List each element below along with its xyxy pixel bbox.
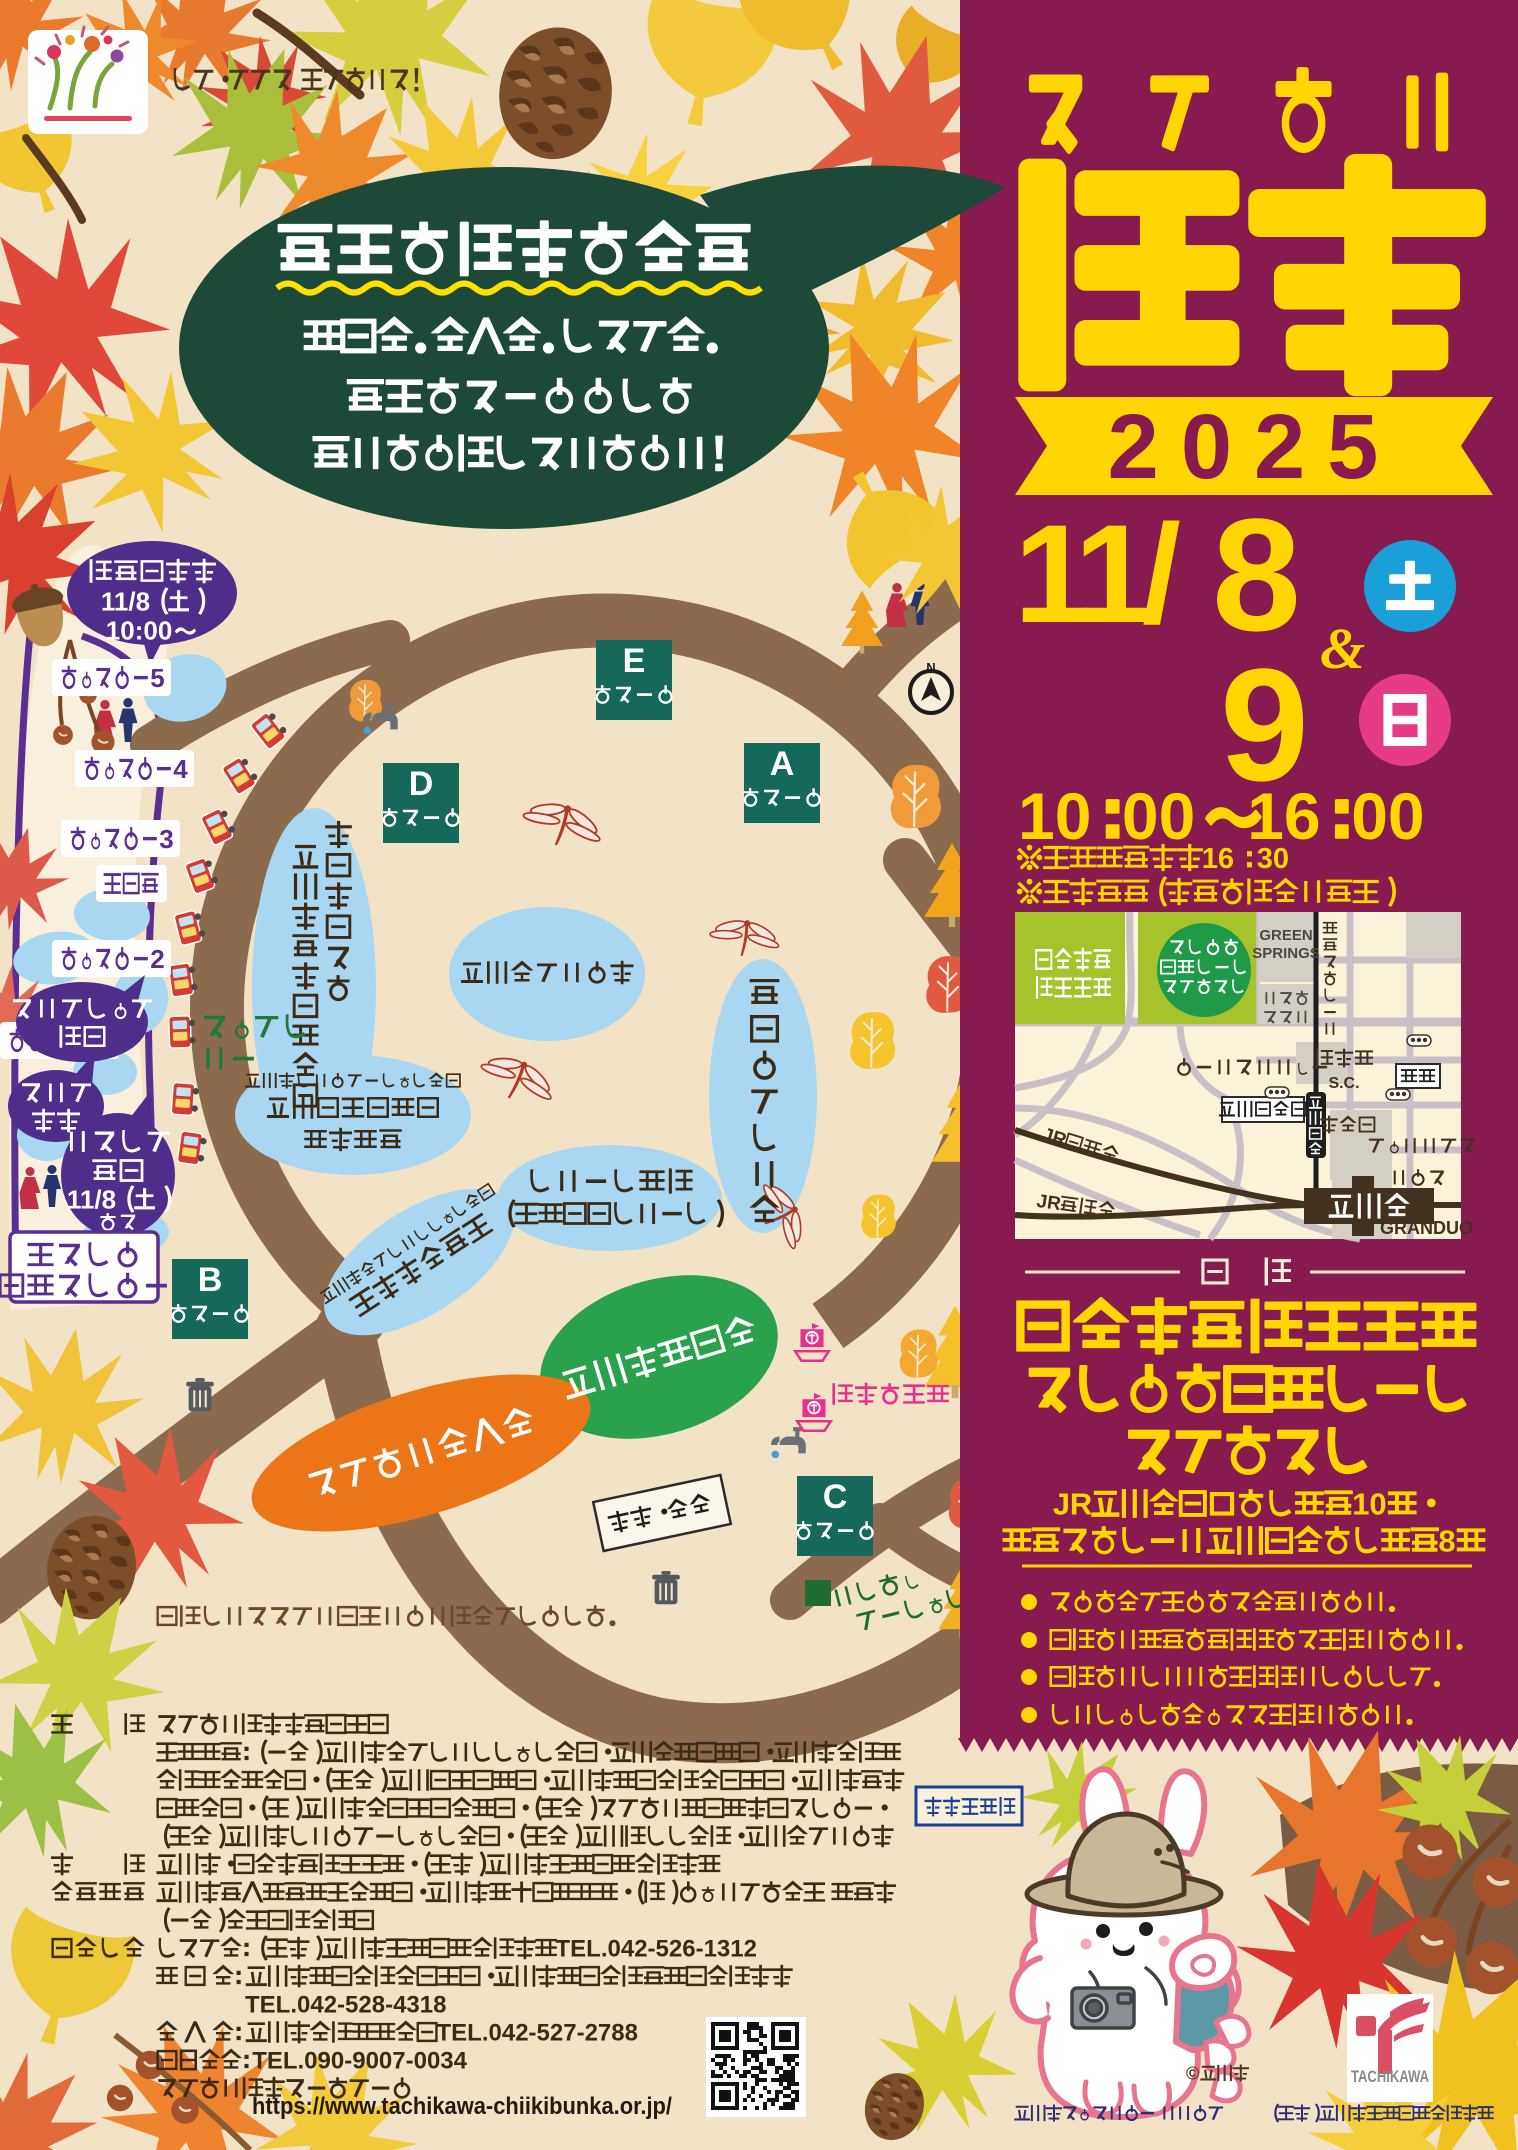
svg-text:11/: 11/ <box>1014 495 1180 652</box>
svg-text:3: 3 <box>159 824 173 854</box>
svg-text:16: 16 <box>1202 843 1234 875</box>
svg-text:JR: JR <box>1053 1487 1093 1522</box>
svg-text:00: 00 <box>1351 779 1424 853</box>
svg-text:11/8: 11/8 <box>67 1184 116 1214</box>
svg-text:10: 10 <box>1018 779 1091 853</box>
svg-text:GRANDUO: GRANDUO <box>1380 1218 1473 1238</box>
svg-text:TEL.042-527-2788: TEL.042-527-2788 <box>437 2020 638 2047</box>
svg-text:TEL.042-528-4318: TEL.042-528-4318 <box>245 1992 446 2019</box>
svg-text:&: & <box>1320 616 1365 681</box>
svg-text:16: 16 <box>1247 779 1320 853</box>
svg-text:00: 00 <box>1122 779 1195 853</box>
svg-text:5: 5 <box>150 663 164 693</box>
svg-text:https://www.tachikawa-chiikibu: https://www.tachikawa-chiikibunka.or.jp/ <box>252 2093 672 2120</box>
svg-text:JR: JR <box>1035 1191 1062 1215</box>
svg-text:11/8: 11/8 <box>101 586 150 616</box>
svg-text:2: 2 <box>150 944 164 974</box>
svg-text:E: E <box>623 642 646 680</box>
svg-text:TEL.090-9007-0034: TEL.090-9007-0034 <box>252 2048 467 2075</box>
svg-text:C: C <box>823 1478 848 1516</box>
svg-text:10: 10 <box>1352 1487 1386 1522</box>
svg-text:B: B <box>198 1261 223 1299</box>
svg-text:TACHIKAWA: TACHIKAWA <box>1351 2068 1429 2086</box>
svg-text:GREEN: GREEN <box>1259 927 1312 944</box>
svg-text:SPRINGS: SPRINGS <box>1252 945 1320 962</box>
svg-text:TEL.042-526-1312: TEL.042-526-1312 <box>556 1936 757 1963</box>
svg-text:N: N <box>926 660 935 675</box>
svg-text:10:00: 10:00 <box>106 615 173 645</box>
svg-text:4: 4 <box>173 754 188 784</box>
svg-text:A: A <box>770 745 795 783</box>
svg-text:D: D <box>409 765 434 803</box>
svg-text:8: 8 <box>1438 1524 1455 1559</box>
svg-text:S.C.: S.C. <box>1328 1075 1359 1092</box>
svg-text:2025: 2025 <box>1108 396 1401 498</box>
svg-text:30: 30 <box>1257 843 1289 875</box>
svg-text:©: © <box>1186 2064 1199 2084</box>
